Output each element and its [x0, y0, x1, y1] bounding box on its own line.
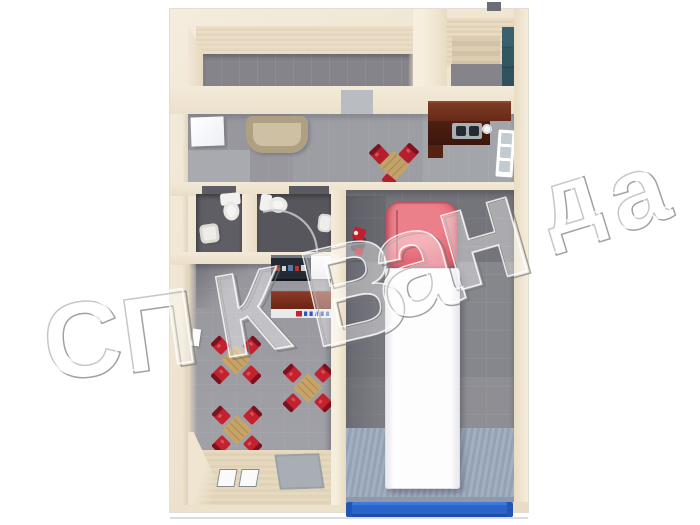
svg-text:К: К	[205, 242, 300, 385]
